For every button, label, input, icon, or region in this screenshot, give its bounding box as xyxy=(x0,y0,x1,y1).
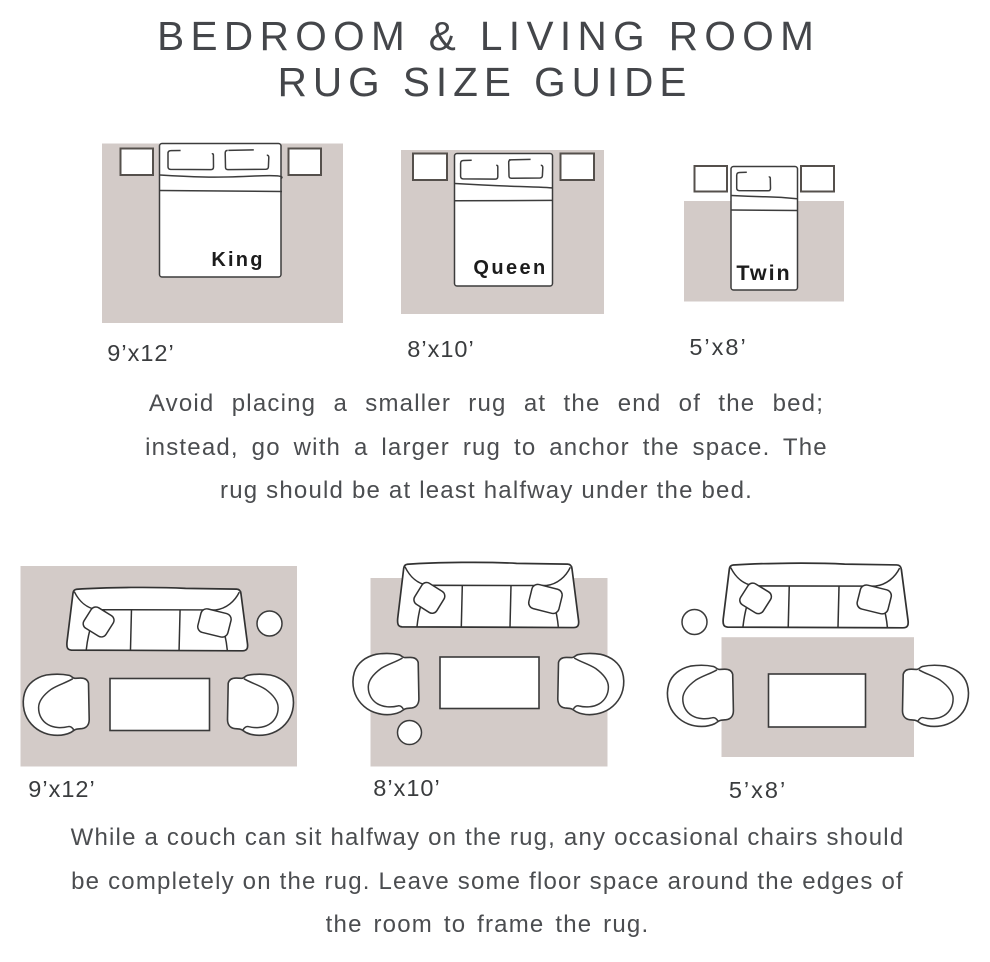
svg-text:8’x10’: 8’x10’ xyxy=(407,336,474,362)
svg-text:5’x8’: 5’x8’ xyxy=(729,777,787,803)
svg-text:8’x10’: 8’x10’ xyxy=(373,775,440,801)
svg-text:Queen: Queen xyxy=(473,257,547,279)
svg-text:9’x12’: 9’x12’ xyxy=(107,340,174,366)
svg-text:King: King xyxy=(211,249,264,271)
svg-text:5’x8’: 5’x8’ xyxy=(689,334,747,360)
svg-text:9’x12’: 9’x12’ xyxy=(28,776,95,802)
svg-text:Twin: Twin xyxy=(736,261,791,285)
